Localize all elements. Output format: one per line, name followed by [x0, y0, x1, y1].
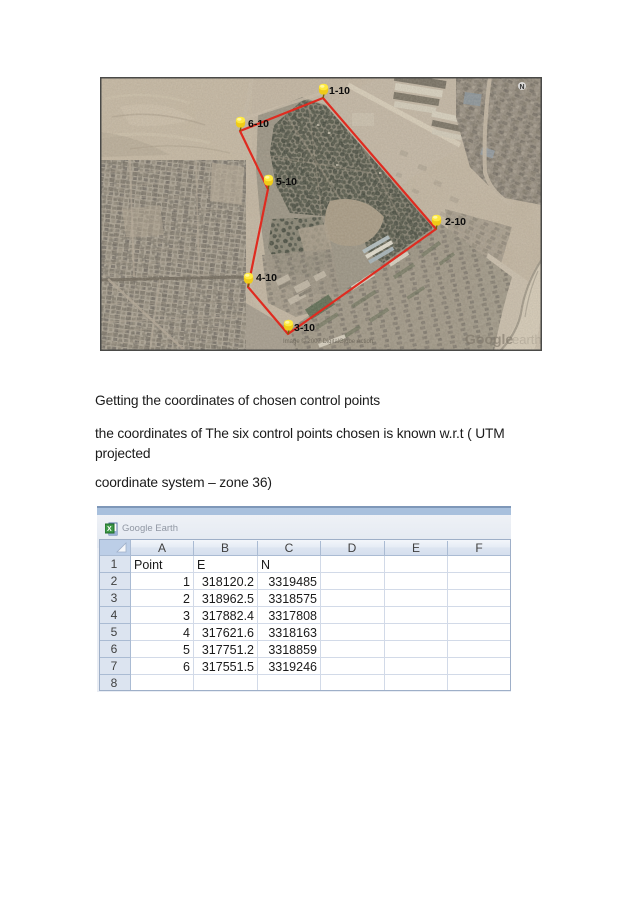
svg-text:3: 3 — [111, 591, 118, 605]
svg-text:5: 5 — [111, 625, 118, 639]
svg-text:B: B — [221, 541, 229, 555]
svg-text:1: 1 — [111, 557, 118, 571]
svg-text:317551.5: 317551.5 — [202, 660, 254, 674]
svg-text:7: 7 — [111, 659, 118, 673]
svg-text:5-10: 5-10 — [276, 176, 297, 188]
svg-text:317751.2: 317751.2 — [202, 643, 254, 657]
svg-text:A: A — [158, 541, 166, 555]
svg-text:X: X — [107, 526, 112, 533]
svg-text:3-10: 3-10 — [294, 322, 315, 334]
svg-text:F: F — [475, 541, 482, 555]
svg-text:4: 4 — [111, 608, 118, 622]
svg-text:4: 4 — [183, 626, 190, 640]
svg-text:6: 6 — [111, 642, 118, 656]
svg-text:2: 2 — [111, 574, 118, 588]
svg-text:318120.2: 318120.2 — [202, 575, 254, 589]
svg-text:Google: Google — [465, 331, 513, 347]
svg-text:318962.5: 318962.5 — [202, 592, 254, 606]
svg-text:2: 2 — [183, 592, 190, 606]
svg-text:2-10: 2-10 — [445, 216, 466, 228]
svg-text:C: C — [285, 541, 294, 555]
svg-text:E: E — [197, 558, 205, 572]
svg-text:6: 6 — [183, 660, 190, 674]
svg-text:8: 8 — [111, 676, 118, 690]
svg-text:317621.6: 317621.6 — [202, 626, 254, 640]
svg-text:Point: Point — [134, 558, 163, 572]
svg-text:D: D — [348, 541, 357, 555]
svg-text:3317808: 3317808 — [268, 609, 317, 623]
svg-text:6-10: 6-10 — [248, 118, 269, 130]
svg-text:1-10: 1-10 — [329, 85, 350, 97]
svg-text:3319246: 3319246 — [268, 660, 317, 674]
svg-text:3319485: 3319485 — [268, 575, 317, 589]
svg-text:N: N — [519, 84, 524, 91]
svg-text:3318859: 3318859 — [268, 643, 317, 657]
svg-text:earth: earth — [512, 332, 542, 347]
svg-text:3318575: 3318575 — [268, 592, 317, 606]
svg-text:N: N — [261, 558, 270, 572]
svg-text:Image © 2007 DigitalGlobe Acti: Image © 2007 DigitalGlobe Action — [283, 338, 373, 345]
svg-text:317882.4: 317882.4 — [202, 609, 254, 623]
svg-text:3: 3 — [183, 609, 190, 623]
svg-text:1: 1 — [183, 575, 190, 589]
svg-text:E: E — [412, 541, 420, 555]
svg-text:3318163: 3318163 — [268, 626, 317, 640]
svg-text:4-10: 4-10 — [256, 272, 277, 284]
svg-text:5: 5 — [183, 643, 190, 657]
